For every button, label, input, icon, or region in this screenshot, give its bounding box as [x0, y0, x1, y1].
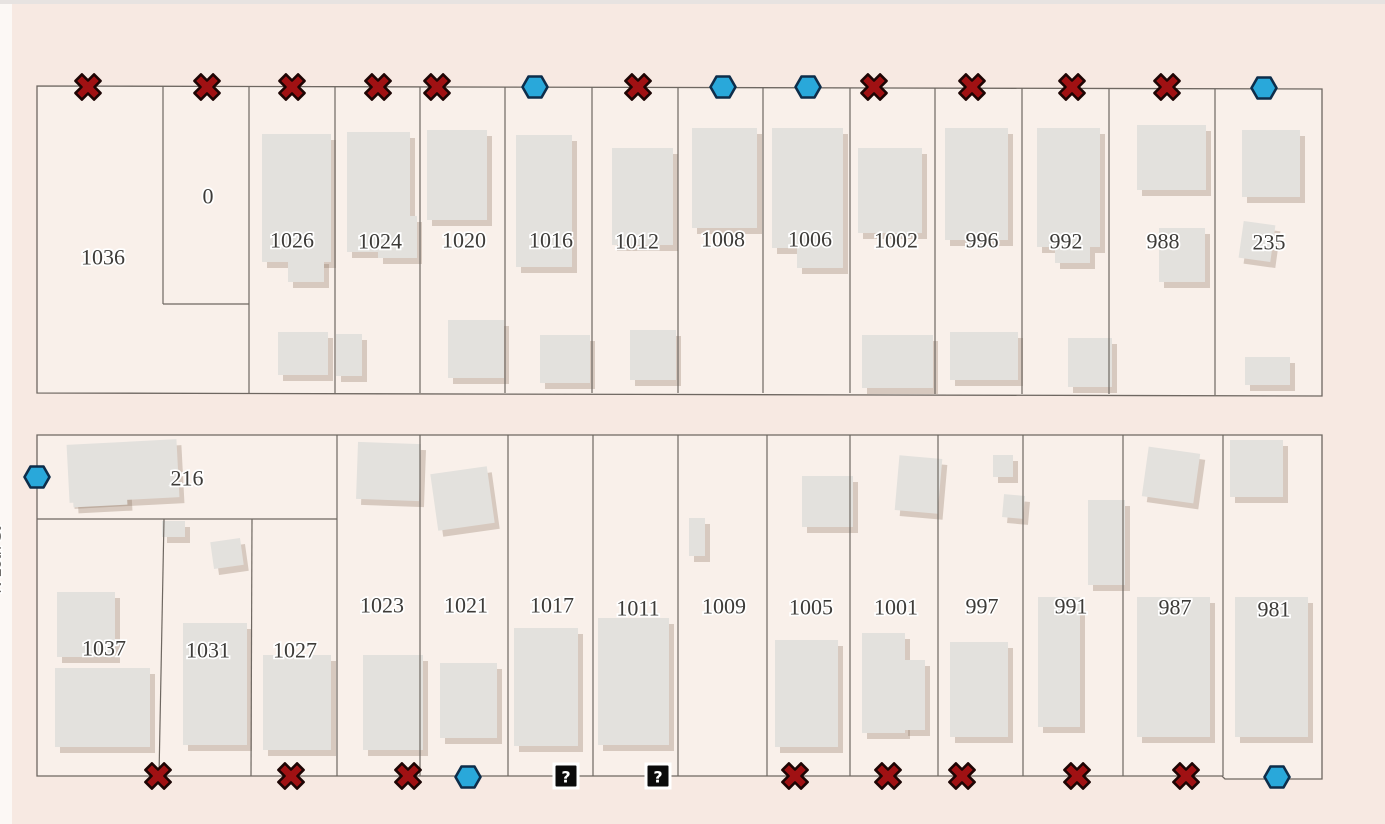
parcel-label-1011: 1011	[616, 596, 659, 621]
parcel-label-0: 0	[203, 184, 214, 209]
building-footprint	[903, 660, 925, 730]
street-name-label: N 10th St	[0, 526, 5, 593]
parcel-label-1024: 1024	[358, 229, 402, 254]
building-footprint	[1088, 500, 1125, 585]
top-edge-strip	[0, 0, 1385, 4]
building-footprint	[1142, 447, 1200, 504]
hexagon-icon	[796, 77, 821, 98]
parcel-label-988: 988	[1147, 229, 1180, 254]
building-footprint	[162, 521, 185, 537]
parcel-map-canvas[interactable]: N 10th St1036010261024102010161012100810…	[0, 0, 1385, 824]
building-footprint	[950, 332, 1018, 380]
hexagon-icon	[25, 467, 50, 488]
marker-question[interactable]: ?	[645, 763, 672, 790]
hexagon-icon	[523, 77, 548, 98]
building-footprint	[73, 487, 128, 508]
parcel-label-1020: 1020	[442, 228, 486, 253]
building-footprint	[950, 642, 1008, 737]
parcel-label-1037: 1037	[82, 636, 126, 661]
parcel-label-992: 992	[1050, 229, 1083, 254]
left-edge-strip	[0, 0, 12, 824]
question-icon: ?	[653, 768, 662, 787]
building-footprint	[862, 633, 905, 733]
parcel-label-1027: 1027	[273, 638, 317, 663]
building-footprint	[210, 538, 243, 569]
building-footprint	[692, 128, 757, 228]
building-footprint	[775, 640, 838, 747]
parcel-label-981: 981	[1258, 597, 1291, 622]
hexagon-icon	[1252, 78, 1277, 99]
parcel-label-996: 996	[966, 228, 999, 253]
parcel-label-1001: 1001	[874, 595, 918, 620]
marker-question[interactable]: ?	[553, 763, 580, 790]
building-footprint	[993, 455, 1013, 477]
parcel-label-1002: 1002	[874, 228, 918, 253]
building-footprint	[440, 663, 497, 738]
building-footprint	[514, 628, 578, 746]
building-footprint	[363, 655, 423, 750]
building-footprint	[336, 334, 362, 376]
building-footprint	[288, 258, 324, 282]
parcel-label-1036: 1036	[81, 245, 125, 270]
parcel-label-1023: 1023	[360, 593, 404, 618]
parcel-label-1005: 1005	[789, 595, 833, 620]
hexagon-icon	[1265, 767, 1290, 788]
building-footprint	[356, 442, 421, 501]
parcel-label-991: 991	[1055, 594, 1088, 619]
building-footprint	[598, 618, 669, 745]
marker-collected-hexagon[interactable]	[456, 767, 481, 788]
marker-collected-hexagon[interactable]	[796, 77, 821, 98]
building-footprint	[858, 148, 922, 233]
building-footprint	[1242, 130, 1300, 197]
question-icon: ?	[561, 768, 570, 787]
marker-collected-hexagon[interactable]	[25, 467, 50, 488]
parcel-label-1009: 1009	[702, 594, 746, 619]
building-footprint	[1245, 357, 1290, 385]
building-footprint	[1137, 125, 1206, 190]
hexagon-icon	[711, 77, 736, 98]
marker-collected-hexagon[interactable]	[711, 77, 736, 98]
building-footprint	[1068, 338, 1112, 387]
marker-collected-hexagon[interactable]	[1265, 767, 1290, 788]
parcel-label-1006: 1006	[788, 227, 832, 252]
building-footprint	[540, 335, 590, 383]
marker-collected-hexagon[interactable]	[523, 77, 548, 98]
building-footprint	[448, 320, 504, 378]
building-footprint	[802, 476, 853, 527]
building-footprint	[862, 335, 933, 388]
building-footprint	[1002, 494, 1025, 519]
building-footprint	[427, 130, 487, 220]
building-footprint	[689, 518, 705, 556]
parcel-label-1021: 1021	[444, 593, 488, 618]
building-footprint	[263, 655, 331, 750]
building-footprint	[278, 332, 328, 375]
building-footprint	[945, 128, 1008, 240]
parcel-label-1017: 1017	[530, 593, 574, 618]
building-footprint	[430, 466, 494, 530]
map-viewport[interactable]: N 10th St1036010261024102010161012100810…	[0, 0, 1385, 824]
parcel-label-987: 987	[1159, 595, 1192, 620]
parcel-label-1016: 1016	[529, 228, 573, 253]
marker-collected-hexagon[interactable]	[1252, 78, 1277, 99]
parcel-label-1031: 1031	[186, 638, 230, 663]
parcel-label-1008: 1008	[701, 227, 745, 252]
building-footprint	[55, 668, 150, 747]
hexagon-icon	[456, 767, 481, 788]
building-footprint	[895, 455, 943, 514]
parcel-label-997: 997	[966, 594, 999, 619]
parcel-label-1012: 1012	[615, 229, 659, 254]
parcel-label-235: 235	[1253, 230, 1286, 255]
parcel-label-1026: 1026	[270, 228, 314, 253]
parcel-label-216: 216	[171, 466, 204, 491]
building-footprint	[1230, 440, 1283, 497]
building-footprint	[630, 330, 676, 380]
